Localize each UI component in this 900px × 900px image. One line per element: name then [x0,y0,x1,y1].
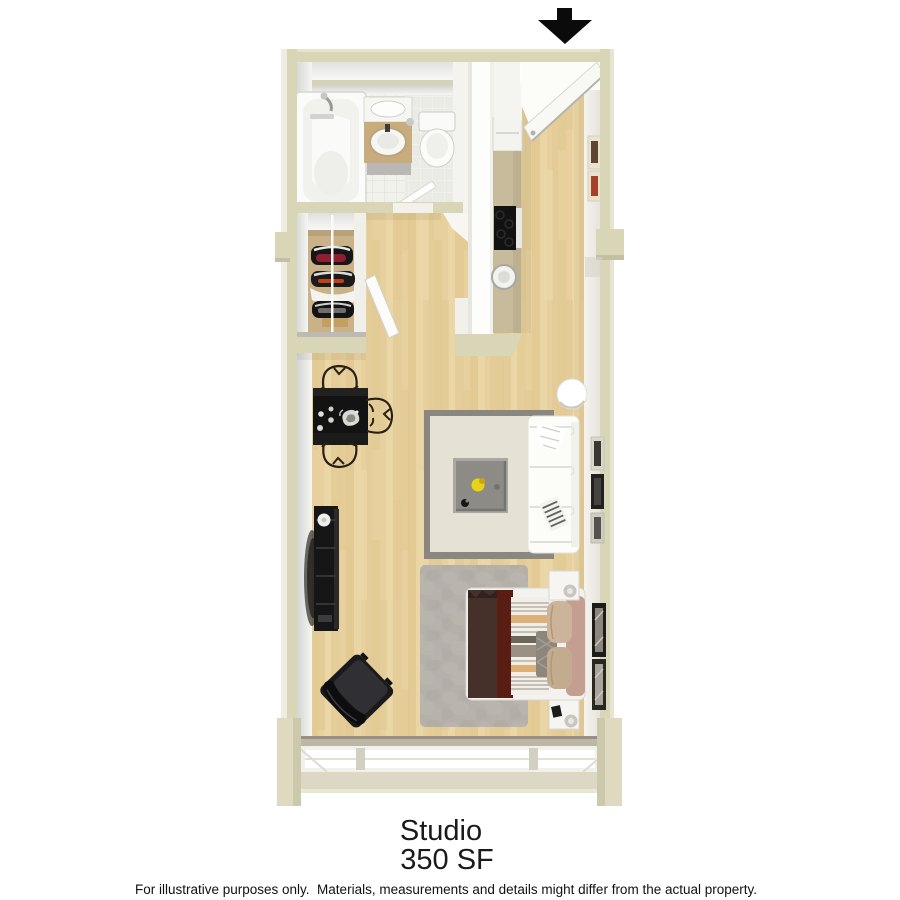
svg-text:For illustrative purposes only: For illustrative purposes only. Material… [135,882,757,897]
svg-text:Studio: Studio [400,815,482,847]
svg-text:350 SF: 350 SF [400,844,494,876]
